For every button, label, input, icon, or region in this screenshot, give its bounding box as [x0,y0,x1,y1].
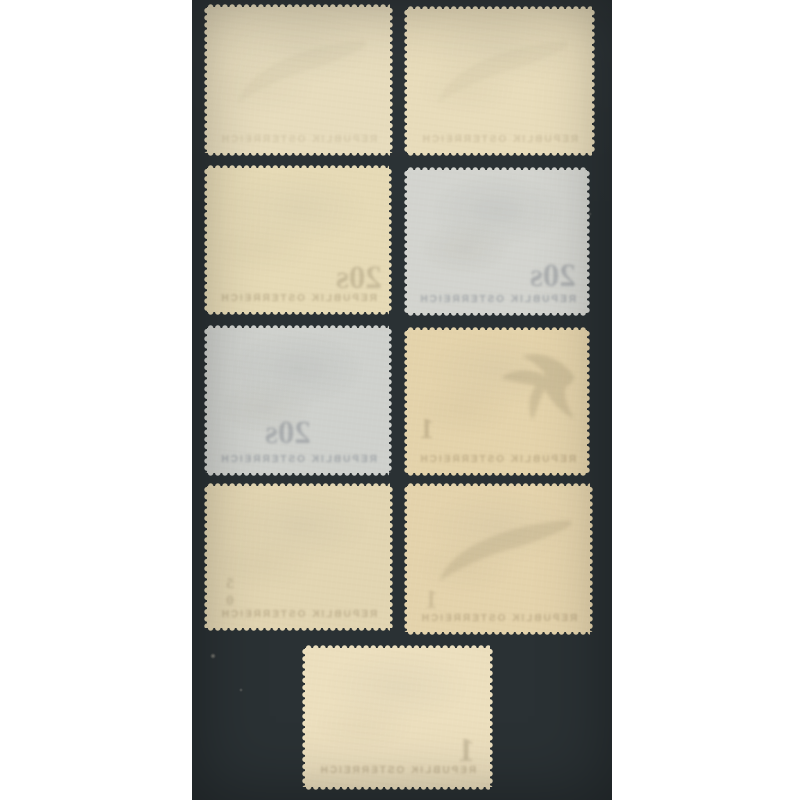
ghost-value-numeral: 1 [420,416,434,444]
stamp-back-row1-left: REPUBLIK OSTERREICH [202,2,395,158]
ghost-inscription-band: REPUBLIK OSTERREICH [418,134,581,145]
paper-grain [407,330,587,473]
stamp-gum-side: 1 REPUBLIK OSTERREICH [407,330,587,473]
photo-page: REPUBLIK OSTERREICH REPUBLIK OSTERREICH [0,0,800,800]
perforation-right [390,7,395,153]
wing-swoosh-show-through [429,26,570,112]
perforation-bottom [407,313,587,318]
perforation-bottom [207,628,390,633]
perforation-bottom [407,153,592,158]
paper-grain [207,328,389,473]
stamp-gum-side: REPUBLIK OSTERREICH [207,7,390,153]
ghost-inscription-band: REPUBLIK OSTERREICH [218,609,379,620]
paper-grain [407,9,592,153]
stamp-gum-side: 1 REPUBLIK OSTERREICH [305,648,490,787]
ghost-inscription-band: REPUBLIK OSTERREICH [316,765,479,776]
perforation-right [590,486,595,632]
bird-silhouette-show-through [475,349,579,441]
perforation-right [587,170,592,313]
ghost-inscription-band: REPUBLIK OSTERREICH [218,454,378,465]
show-through-shading [407,330,587,473]
ghost-inscription-band: REPUBLIK OSTERREICH [418,613,579,624]
ghost-inscription-band: REPUBLIK OSTERREICH [418,294,576,305]
stamp-gum-side: 20s REPUBLIK OSTERREICH [207,168,389,312]
stamp-gum-side: 50 REPUBLIK OSTERREICH [207,486,390,628]
stamp-gum-side: REPUBLIK OSTERREICH [407,9,592,153]
paper-grain [207,7,390,153]
perforation-right [592,9,597,153]
perforation-right [389,168,394,312]
perforation-right [490,648,495,787]
perforation-bottom [407,473,587,478]
ghost-value-numeral: 20s [530,260,576,293]
ghost-inscription-band: REPUBLIK OSTERREICH [418,454,576,465]
perforation-bottom [207,153,390,158]
stamp-back-row3-left: 20s REPUBLIK OSTERREICH [202,323,394,478]
perforation-bottom [207,473,389,478]
wing-swoosh-show-through [431,505,574,590]
stamp-gum-side: 1 REPUBLIK OSTERREICH [407,486,590,632]
show-through-shading [407,9,592,153]
stamp-photo-background: REPUBLIK OSTERREICH REPUBLIK OSTERREICH [192,0,612,800]
perforation-right [389,328,394,473]
stamp-back-row3-right: 1 REPUBLIK OSTERREICH [402,325,592,478]
stamp-gum-side: 20s REPUBLIK OSTERREICH [407,170,587,313]
ghost-value-numeral: 1 [458,734,475,768]
show-through-shading [207,7,390,153]
perforation-bottom [305,787,490,792]
show-through-shading [207,328,389,473]
stamp-gum-side: 20s REPUBLIK OSTERREICH [207,328,389,473]
stamp-back-row5-center: 1 REPUBLIK OSTERREICH [300,643,495,792]
ghost-value-numeral: 50 [223,576,238,610]
stamp-back-row4-left: 50 REPUBLIK OSTERREICH [202,481,395,633]
stamp-back-row4-right: 1 REPUBLIK OSTERREICH [402,481,595,637]
ghost-inscription-band: REPUBLIK OSTERREICH [218,134,379,145]
ghost-value-numeral: 1 [425,587,438,613]
ghost-value-numeral: 20s [265,417,311,450]
wing-swoosh-show-through [229,25,368,113]
ghost-value-numeral: 20s [336,262,382,295]
perforation-bottom [207,312,389,317]
ghost-inscription-band: REPUBLIK OSTERREICH [218,293,378,304]
perforation-right [390,486,395,628]
stamp-back-row2-right: 20s REPUBLIK OSTERREICH [402,165,592,318]
perforation-right [587,330,592,473]
stamp-back-row1-right: REPUBLIK OSTERREICH [402,4,597,158]
stamp-back-row2-left: 20s REPUBLIK OSTERREICH [202,163,394,317]
perforation-bottom [407,632,590,637]
